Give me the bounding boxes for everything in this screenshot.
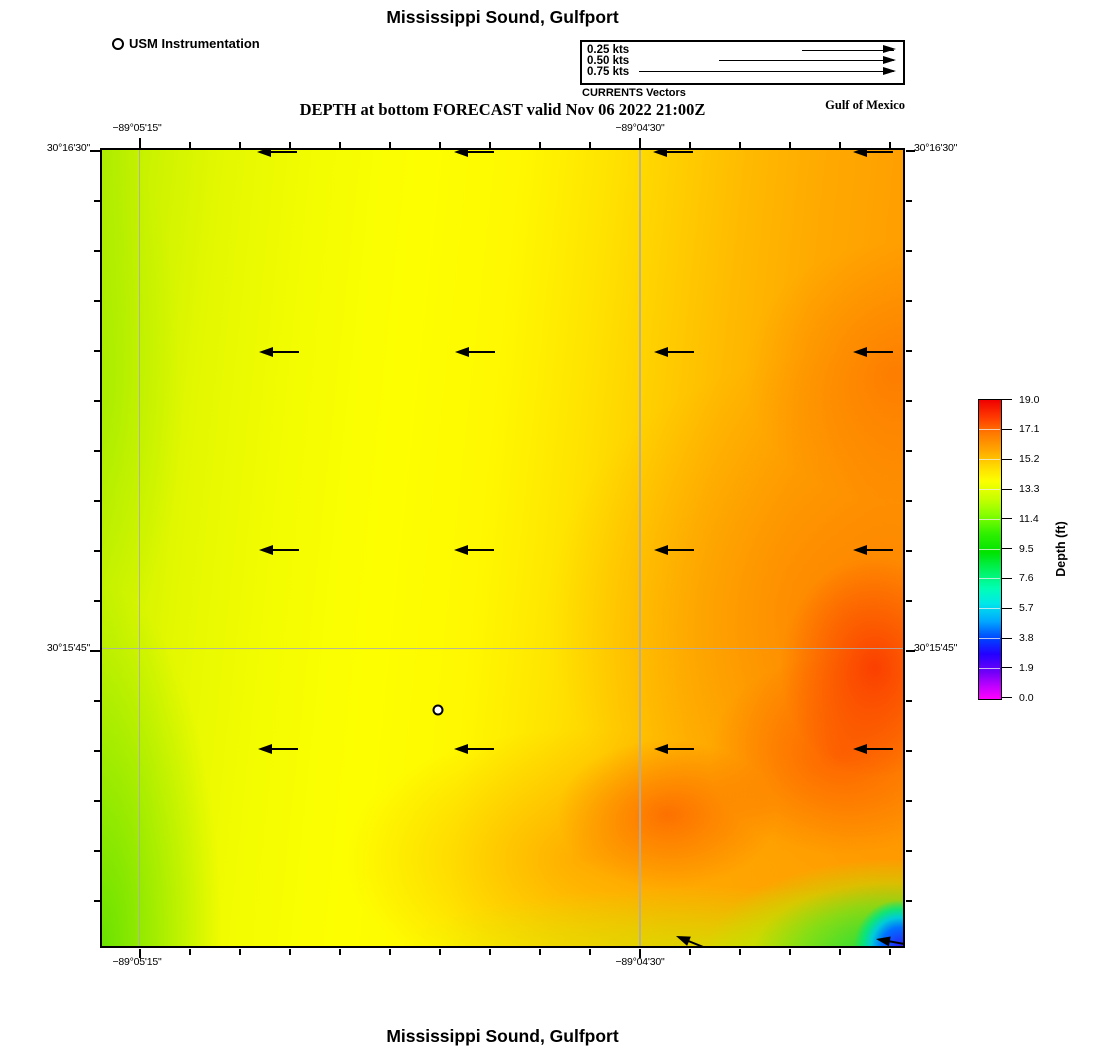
depth-heatmap	[102, 150, 903, 946]
axis-tick	[239, 949, 241, 955]
axis-tick	[289, 949, 291, 955]
bottom-title: Mississippi Sound, Gulfport	[100, 1026, 905, 1047]
current-legend-box: 0.25 kts0.50 kts0.75 kts	[580, 40, 905, 85]
colorbar-gradient	[978, 399, 1002, 700]
legend-arrow-icon	[719, 60, 894, 61]
colorbar-tick-label: 19.0	[1019, 394, 1039, 406]
colorbar-tick-label: 9.5	[1019, 543, 1034, 555]
axis-tick	[789, 142, 791, 148]
axis-tick	[889, 142, 891, 148]
axis-tick	[739, 142, 741, 148]
axis-tick	[339, 142, 341, 148]
axis-tick	[639, 949, 641, 959]
axis-tick	[906, 500, 912, 502]
axis-label-lat-top-right: 30°16'30"	[914, 142, 957, 154]
legend-speed-label: 0.50 kts	[587, 56, 629, 67]
axis-label-lon-right-top: −89°04'30"	[615, 122, 664, 134]
axis-tick	[839, 142, 841, 148]
arrow-shaft	[267, 748, 298, 750]
axis-tick	[589, 142, 591, 148]
axis-tick	[906, 850, 912, 852]
axis-tick	[94, 450, 100, 452]
region-label: Gulf of Mexico	[655, 98, 905, 113]
axis-tick	[94, 200, 100, 202]
colorbar-tick	[1002, 548, 1012, 549]
axis-tick	[139, 138, 141, 148]
colorbar-tick	[1002, 429, 1012, 430]
axis-tick	[94, 700, 100, 702]
colorbar-tick-line	[979, 429, 1000, 430]
colorbar-tick	[1002, 399, 1012, 400]
axis-tick	[906, 650, 916, 652]
axis-tick	[906, 600, 912, 602]
axis-tick	[539, 949, 541, 955]
current-vector-arrow	[876, 939, 903, 945]
axis-tick	[94, 600, 100, 602]
colorbar-tick-label: 5.7	[1019, 602, 1034, 614]
axis-tick	[94, 900, 100, 902]
axis-label-lat-mid-right: 30°15'45"	[914, 642, 957, 654]
axis-label-lon-left-bottom: −89°05'15"	[112, 956, 161, 968]
latitude-gridline	[102, 648, 903, 650]
axis-tick	[906, 350, 912, 352]
arrow-shaft	[464, 351, 495, 353]
axis-tick	[906, 700, 912, 702]
axis-tick	[94, 750, 100, 752]
arrow-shaft	[268, 549, 299, 551]
axis-tick	[889, 949, 891, 955]
axis-label-lon-left-top: −89°05'15"	[112, 122, 161, 134]
axis-tick	[94, 350, 100, 352]
axis-label-lat-mid-left: 30°15'45"	[18, 642, 90, 654]
axis-tick	[389, 142, 391, 148]
arrow-shaft	[266, 151, 297, 153]
axis-tick	[906, 400, 912, 402]
arrow-shaft	[862, 549, 893, 551]
colorbar-tick	[1002, 667, 1012, 668]
axis-tick	[94, 400, 100, 402]
axis-tick	[389, 949, 391, 955]
legend-arrow-icon	[639, 71, 894, 72]
arrow-shaft	[662, 151, 693, 153]
colorbar-tick-label: 7.6	[1019, 572, 1034, 584]
axis-tick	[906, 250, 912, 252]
colorbar-tick	[1002, 638, 1012, 639]
axis-tick	[90, 150, 100, 152]
arrow-shaft	[684, 938, 710, 946]
axis-tick	[94, 550, 100, 552]
colorbar-tick-line	[979, 668, 1000, 669]
axis-tick	[906, 150, 916, 152]
station-circle-icon	[112, 38, 124, 50]
colorbar-tick	[1002, 489, 1012, 490]
colorbar-tick-line	[979, 519, 1000, 520]
colorbar-tick	[1002, 697, 1012, 698]
arrow-shaft	[862, 151, 893, 153]
axis-tick	[639, 138, 641, 148]
arrow-shaft	[463, 748, 494, 750]
longitude-gridline	[639, 150, 641, 946]
arrow-shaft	[663, 351, 694, 353]
axis-tick	[189, 142, 191, 148]
arrow-shaft	[463, 549, 494, 551]
axis-tick	[289, 142, 291, 148]
axis-tick	[906, 300, 912, 302]
axis-tick	[689, 142, 691, 148]
colorbar-tick-line	[979, 489, 1000, 490]
colorbar-tick-label: 15.2	[1019, 453, 1039, 465]
axis-tick	[906, 200, 912, 202]
colorbar-tick-line	[979, 608, 1000, 609]
axis-tick	[90, 650, 100, 652]
legend-speed-label: 0.25 kts	[587, 45, 629, 56]
axis-tick	[339, 949, 341, 955]
station-legend: USM Instrumentation	[112, 36, 260, 51]
colorbar-tick	[1002, 608, 1012, 609]
colorbar-tick	[1002, 578, 1012, 579]
colorbar-tick-line	[979, 638, 1000, 639]
colorbar-tick-label: 17.1	[1019, 423, 1039, 435]
axis-tick	[906, 750, 912, 752]
axis-tick	[689, 949, 691, 955]
arrow-shaft	[663, 549, 694, 551]
colorbar-tick-label: 3.8	[1019, 632, 1034, 644]
axis-tick	[839, 949, 841, 955]
station-legend-label: USM Instrumentation	[129, 36, 260, 51]
colorbar-tick	[1002, 459, 1012, 460]
colorbar-tick-line	[979, 578, 1000, 579]
axis-tick	[94, 300, 100, 302]
arrow-shaft	[268, 351, 299, 353]
axis-tick	[189, 949, 191, 955]
colorbar-tick	[1002, 518, 1012, 519]
arrow-shaft	[862, 351, 893, 353]
longitude-gridline	[139, 150, 141, 946]
axis-tick	[906, 550, 912, 552]
axis-tick	[489, 142, 491, 148]
colorbar-tick-line	[979, 549, 1000, 550]
colorbar-tick-label: 0.0	[1019, 692, 1034, 704]
axis-tick	[94, 500, 100, 502]
colorbar-tick-line	[979, 459, 1000, 460]
axis-tick	[139, 949, 141, 959]
axis-tick	[439, 142, 441, 148]
axis-tick	[239, 142, 241, 148]
axis-tick	[739, 949, 741, 955]
axis-tick	[94, 250, 100, 252]
colorbar-tick-label: 11.4	[1019, 513, 1039, 525]
axis-label-lat-top-left: 30°16'30"	[18, 142, 90, 154]
colorbar-tick-label: 13.3	[1019, 483, 1039, 495]
axis-tick	[94, 850, 100, 852]
arrowhead-icon	[674, 931, 691, 946]
colorbar-title: Depth (ft)	[1054, 521, 1068, 577]
colorbar: 19.017.115.213.311.49.57.65.73.81.90.0	[978, 399, 1100, 701]
legend-speed-label: 0.75 kts	[587, 67, 629, 78]
axis-tick	[489, 949, 491, 955]
axis-tick	[439, 949, 441, 955]
axis-tick	[539, 142, 541, 148]
axis-tick	[589, 949, 591, 955]
current-vector-arrow	[676, 936, 709, 946]
page-title: Mississippi Sound, Gulfport	[100, 7, 905, 28]
arrow-shaft	[463, 151, 494, 153]
station-marker-icon	[432, 705, 443, 716]
axis-tick	[906, 450, 912, 452]
arrow-shaft	[663, 748, 694, 750]
legend-arrow-icon	[802, 50, 894, 51]
map-frame	[100, 148, 905, 948]
axis-tick	[789, 949, 791, 955]
axis-tick	[906, 800, 912, 802]
arrow-shaft	[862, 748, 893, 750]
axis-tick	[94, 800, 100, 802]
colorbar-tick-label: 1.9	[1019, 662, 1034, 674]
axis-tick	[906, 900, 912, 902]
